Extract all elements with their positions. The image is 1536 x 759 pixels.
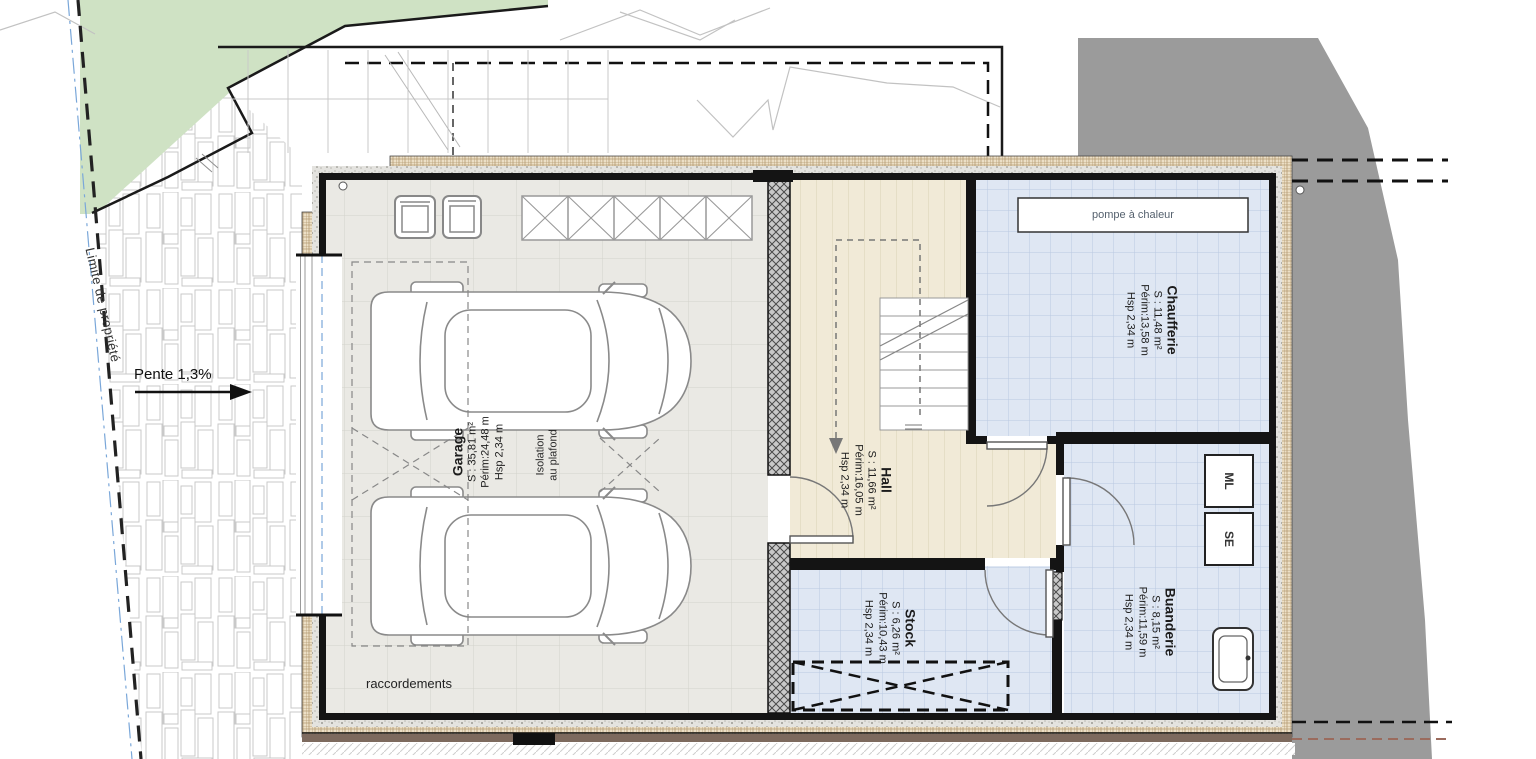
buanderie-room-label: Buanderie S : 8,15 m² Périm:11,59 m Hsp … xyxy=(1121,587,1178,658)
hall-perimeter: Périm:16,05 m xyxy=(851,444,864,516)
stock-room-label: Stock S : 6,26 m² Périm:10,43 m Hsp 2,34… xyxy=(861,592,918,664)
foundation-bands xyxy=(302,733,1295,755)
hall-area: S : 11,66 m² xyxy=(864,444,877,516)
buanderie-name: Buanderie xyxy=(1162,587,1179,658)
buanderie-perimeter: Périm:11,59 m xyxy=(1135,587,1148,658)
insulation-note: Isolation au plafond xyxy=(535,429,562,480)
garage-perimeter: Périm:24,48 m xyxy=(480,416,493,488)
heat-pump-label: pompe à chaleur xyxy=(1092,209,1174,221)
hall-ceiling: Hsp 2,34 m xyxy=(837,444,850,516)
buanderie-area: S : 8,15 m² xyxy=(1148,587,1161,658)
stock-ceiling: Hsp 2,34 m xyxy=(861,592,874,664)
hall-name: Hall xyxy=(878,444,895,516)
chaufferie-name: Chaufferie xyxy=(1164,284,1181,356)
stock-name: Stock xyxy=(902,592,919,664)
car-bottom xyxy=(371,487,691,645)
slope-label: Pente 1,3% xyxy=(134,366,212,383)
stock-area: S : 6,26 m² xyxy=(888,592,901,664)
connections-label: raccordements xyxy=(366,676,452,691)
dryer-label: SE xyxy=(1222,531,1236,547)
garage-name: Garage xyxy=(449,416,466,488)
garage-shelving xyxy=(522,196,752,240)
garage-room-label: Garage S : 35,81 m² Périm:24,48 m Hsp 2,… xyxy=(449,416,506,488)
chaufferie-ceiling: Hsp 2,34 m xyxy=(1123,284,1136,356)
floor-plan-drawing xyxy=(0,0,1536,759)
chaufferie-room-label: Chaufferie S : 11,48 m² Périm:13,58 m Hs… xyxy=(1123,284,1180,356)
laundry-sink xyxy=(1213,628,1253,690)
hall-room-label: Hall S : 11,66 m² Périm:16,05 m Hsp 2,34… xyxy=(837,444,894,516)
garage-area: S : 35,81 m² xyxy=(466,416,479,488)
buanderie-ceiling: Hsp 2,34 m xyxy=(1121,587,1134,658)
stock-perimeter: Périm:10,43 m xyxy=(875,592,888,664)
chaufferie-area: S : 11,48 m² xyxy=(1150,284,1163,356)
washing-machine-label: ML xyxy=(1222,472,1236,489)
garage-gate xyxy=(296,255,342,615)
chaufferie-perimeter: Périm:13,58 m xyxy=(1137,284,1150,356)
floor-plan-canvas: Garage S : 35,81 m² Périm:24,48 m Hsp 2,… xyxy=(0,0,1536,759)
garage-ceiling: Hsp 2,34 m xyxy=(493,416,506,488)
car-top xyxy=(371,282,691,440)
stone-pavement xyxy=(95,92,302,759)
